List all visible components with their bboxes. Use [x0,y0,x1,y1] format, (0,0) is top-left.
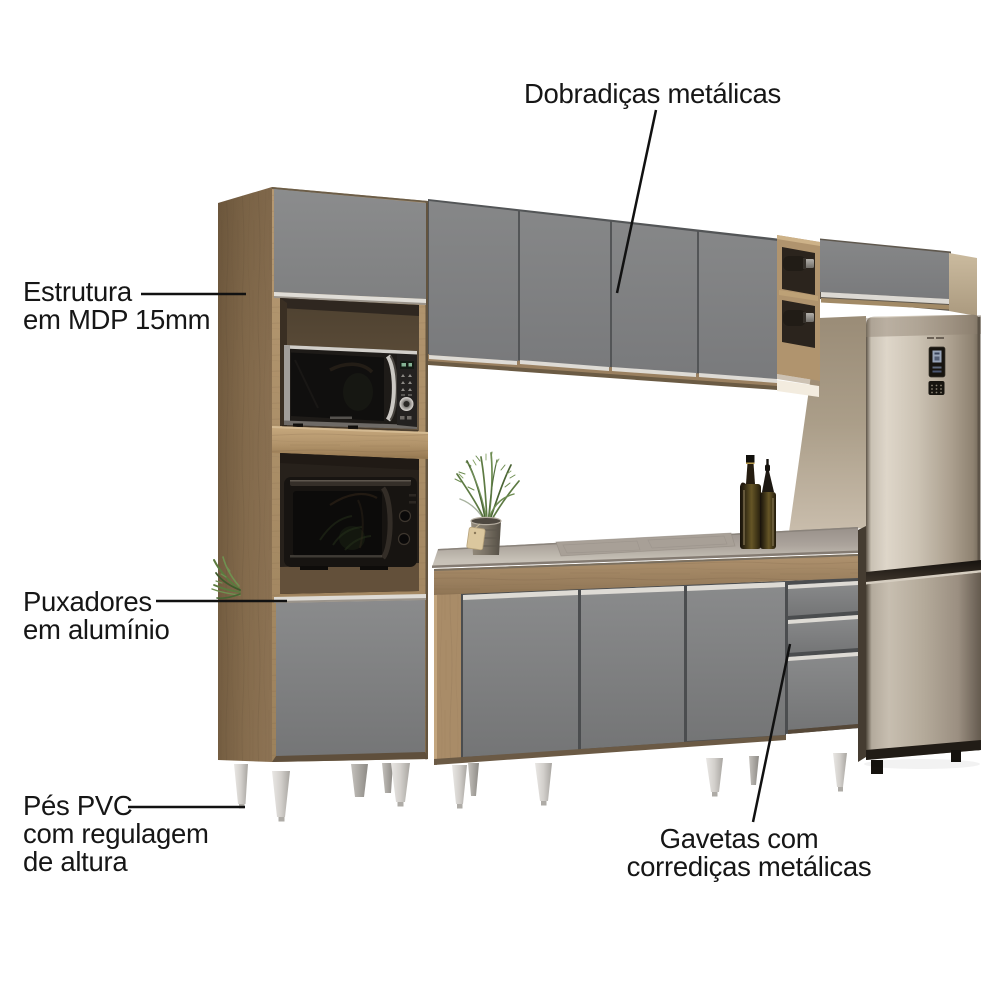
svg-text:em MDP 15mm: em MDP 15mm [23,304,210,335]
svg-text:de altura: de altura [23,846,128,877]
svg-text:Dobradiças metálicas: Dobradiças metálicas [524,78,781,109]
svg-text:Puxadores: Puxadores [23,586,152,617]
svg-text:com regulagem: com regulagem [23,818,209,849]
svg-text:Pés PVC: Pés PVC [23,790,132,821]
svg-text:Estrutura: Estrutura [23,276,133,307]
svg-text:em alumínio: em alumínio [23,614,170,645]
svg-text:Gavetas com: Gavetas com [660,823,819,854]
svg-text:corrediças metálicas: corrediças metálicas [627,851,872,882]
